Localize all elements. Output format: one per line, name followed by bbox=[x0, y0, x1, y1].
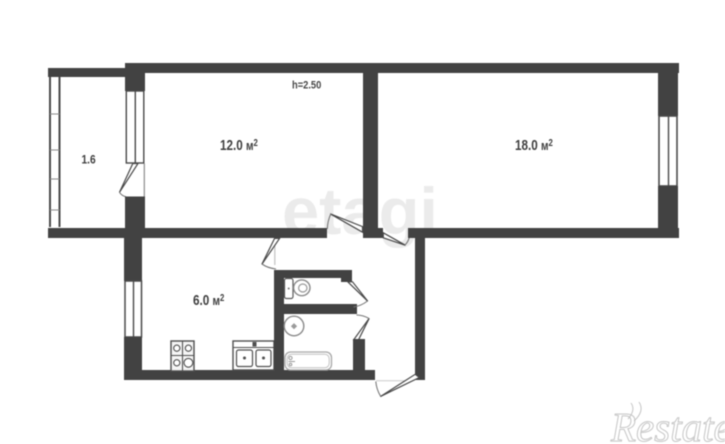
svg-text:h=2.50: h=2.50 bbox=[292, 80, 322, 92]
svg-text:12.0 м2: 12.0 м2 bbox=[220, 137, 258, 154]
svg-text:1.6: 1.6 bbox=[82, 154, 96, 167]
svg-text:Restate: Restate bbox=[610, 404, 725, 444]
svg-text:6.0 м2: 6.0 м2 bbox=[193, 292, 224, 309]
svg-text:18.0 м2: 18.0 м2 bbox=[515, 137, 553, 154]
